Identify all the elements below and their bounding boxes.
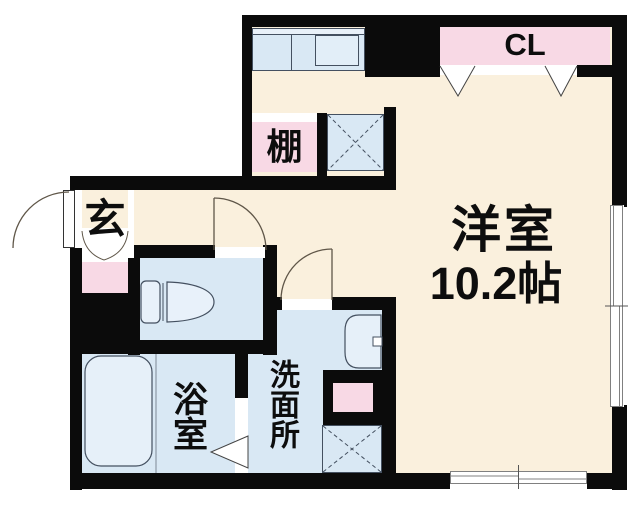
floorplan: CL 棚 玄 洋室 10.2帖 浴室 洗面所 xyxy=(0,0,640,505)
entrance-door-arc xyxy=(13,192,69,248)
bathtub xyxy=(85,354,156,473)
closet-bifold-mark-2 xyxy=(545,66,577,96)
closet-bifold-mark-1 xyxy=(440,66,475,96)
bath-door-mark xyxy=(211,436,248,468)
toilet-door-arc xyxy=(214,198,266,250)
bathroom-label: 浴室 xyxy=(170,381,205,451)
storage-cross-washroom xyxy=(323,426,381,472)
washroom-door-arc xyxy=(281,249,332,300)
main-room-size: 10.2帖 xyxy=(386,261,606,306)
toilet xyxy=(141,281,214,323)
storage-cross-upper xyxy=(328,115,383,170)
entrance-label: 玄 xyxy=(81,199,129,240)
washbasin xyxy=(345,315,382,368)
closet-label: CL xyxy=(440,29,610,60)
main-room-name: 洋室 xyxy=(396,205,612,255)
washroom-label: 洗面所 xyxy=(266,359,296,449)
window-bottom-symbol xyxy=(450,465,587,489)
shelf-label: 棚 xyxy=(252,129,317,165)
